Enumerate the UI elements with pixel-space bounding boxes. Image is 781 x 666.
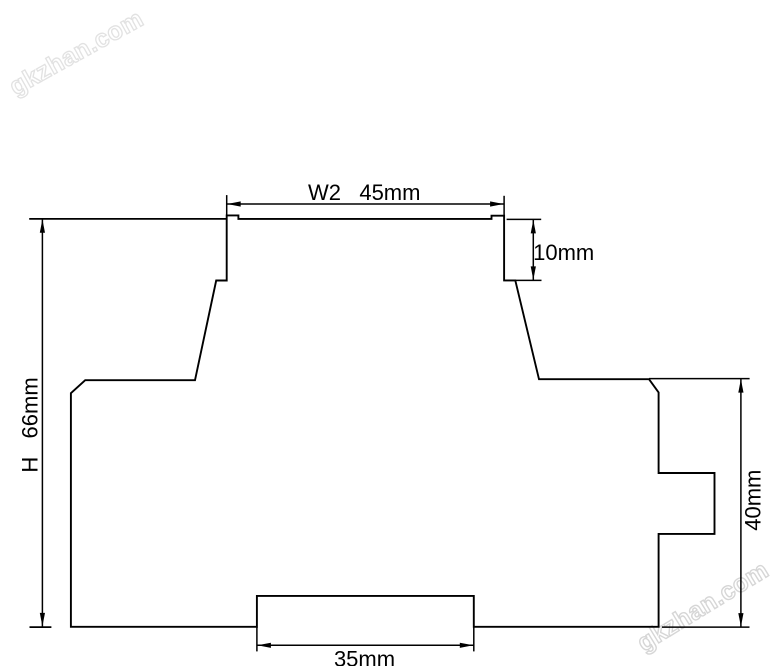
svg-text:40mm: 40mm xyxy=(740,470,765,531)
svg-text:gkzhan.com: gkzhan.com xyxy=(632,556,773,657)
svg-text:W2 45mm: W2 45mm xyxy=(308,180,420,205)
svg-text:H 66mm: H 66mm xyxy=(18,377,43,472)
svg-text:10mm: 10mm xyxy=(533,240,594,265)
svg-text:gkzhan.com: gkzhan.com xyxy=(5,5,148,101)
svg-text:35mm: 35mm xyxy=(334,647,395,666)
